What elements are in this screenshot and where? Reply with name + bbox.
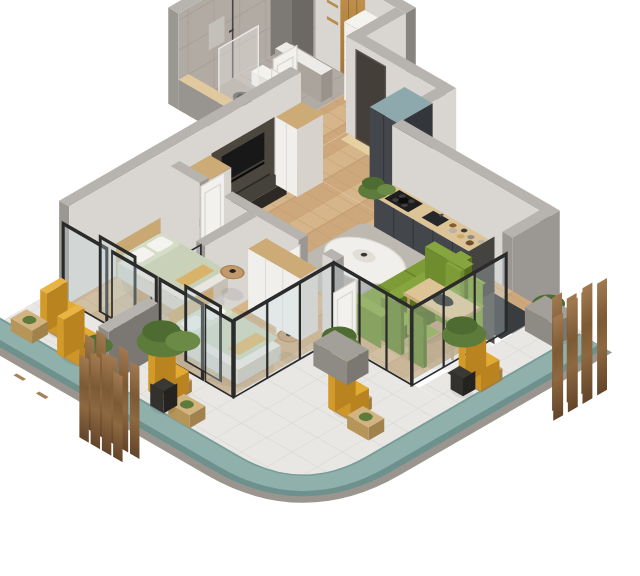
apartment-render-canvas (0, 0, 640, 576)
isometric-apartment-svg (0, 0, 640, 576)
iso-scene (0, 0, 640, 566)
